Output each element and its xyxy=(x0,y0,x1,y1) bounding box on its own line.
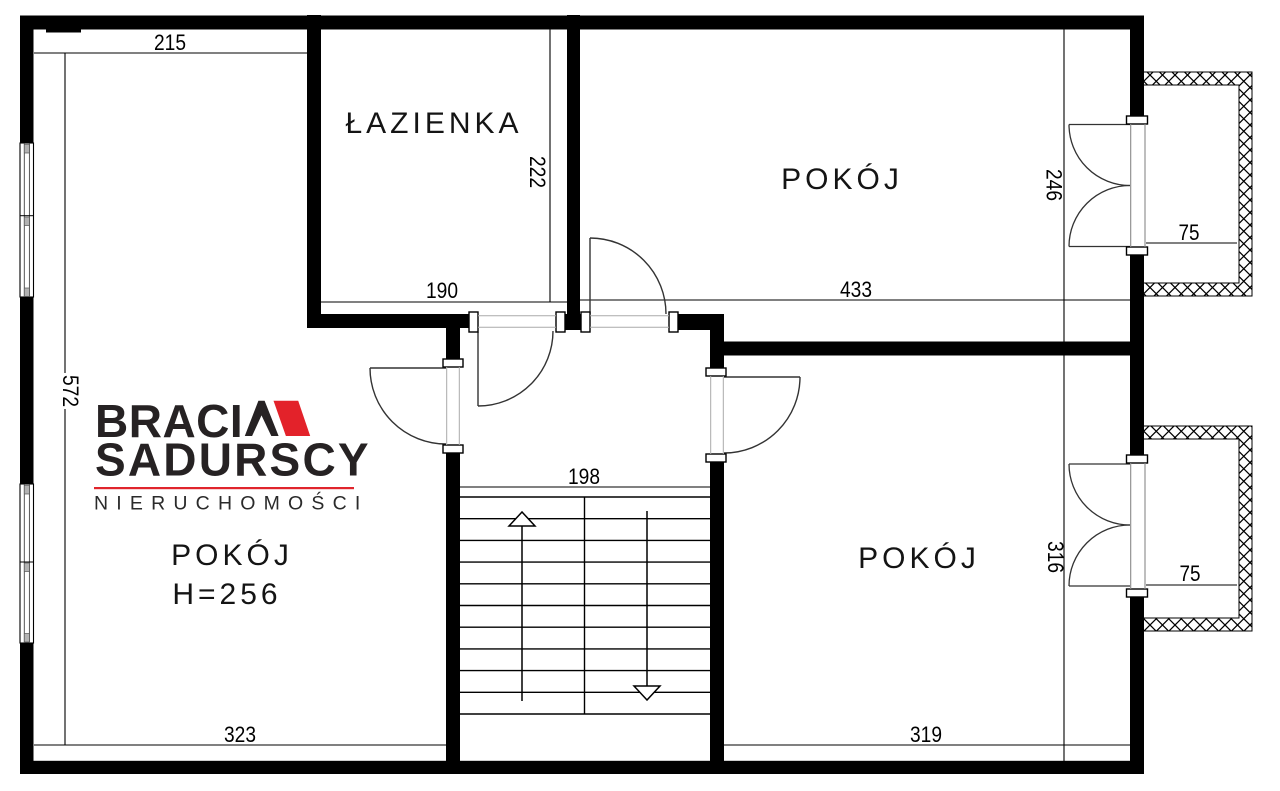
svg-text:POKÓJ: POKÓJ xyxy=(171,539,293,572)
svg-text:246: 246 xyxy=(1042,169,1067,201)
svg-text:319: 319 xyxy=(910,722,942,747)
svg-text:190: 190 xyxy=(426,278,458,303)
svg-text:75: 75 xyxy=(1180,561,1201,586)
svg-text:NIERUCHOMOŚCI: NIERUCHOMOŚCI xyxy=(94,491,369,515)
svg-text:75: 75 xyxy=(1179,220,1200,245)
svg-text:POKÓJ: POKÓJ xyxy=(781,163,903,196)
svg-text:323: 323 xyxy=(224,722,256,747)
svg-text:222: 222 xyxy=(525,156,550,188)
svg-text:433: 433 xyxy=(840,277,872,302)
svg-text:572: 572 xyxy=(58,375,83,407)
svg-text:316: 316 xyxy=(1043,541,1068,573)
svg-text:POKÓJ: POKÓJ xyxy=(858,542,980,575)
svg-text:H=256: H=256 xyxy=(172,578,281,611)
svg-text:SADURSCY: SADURSCY xyxy=(95,434,371,486)
svg-text:215: 215 xyxy=(154,30,186,55)
svg-text:ŁAZIENKA: ŁAZIENKA xyxy=(345,107,522,140)
svg-text:198: 198 xyxy=(568,464,600,489)
